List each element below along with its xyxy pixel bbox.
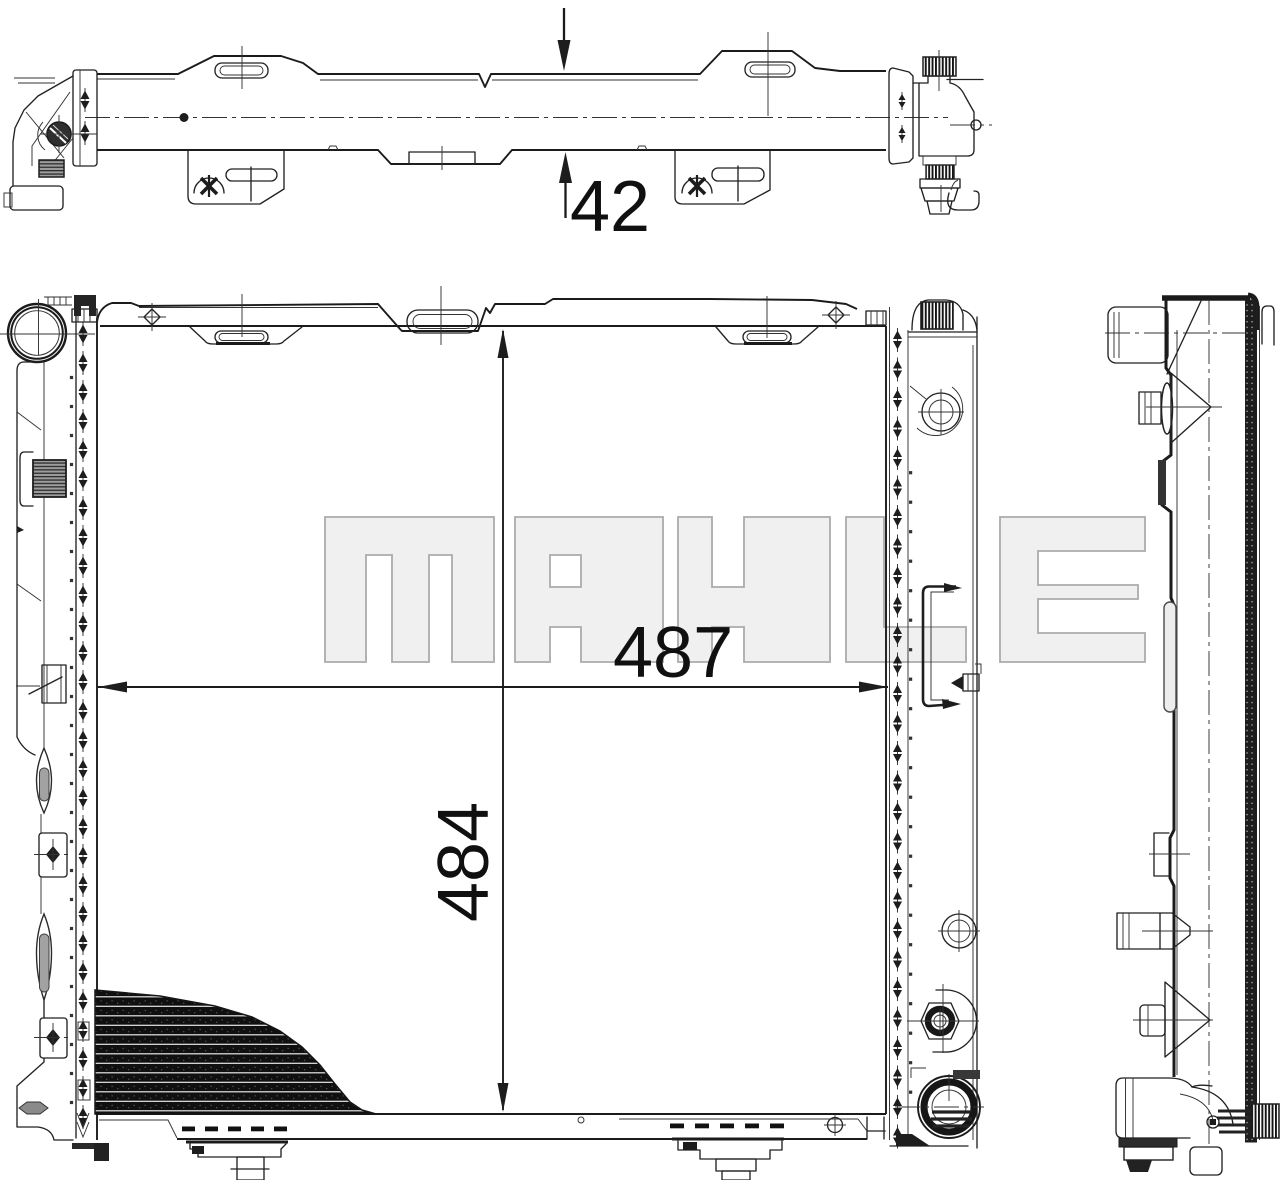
svg-text:487: 487	[613, 613, 733, 693]
svg-text:484: 484	[424, 802, 504, 922]
svg-text:42: 42	[570, 167, 650, 247]
